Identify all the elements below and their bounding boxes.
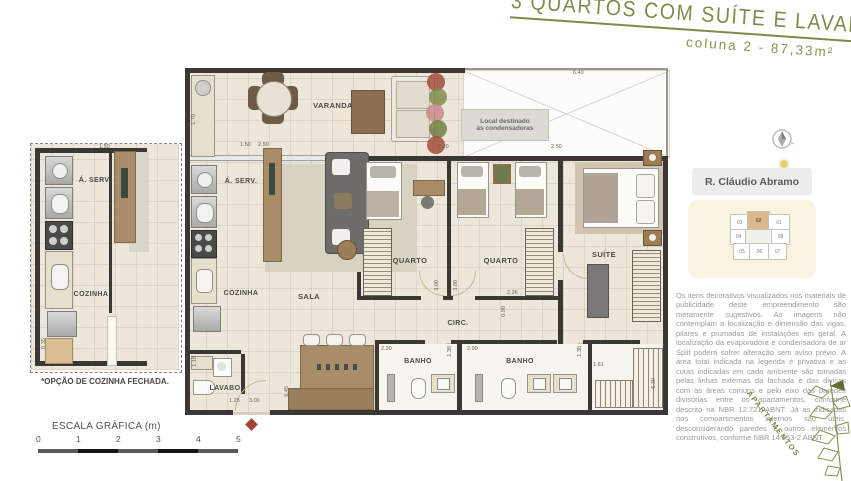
suite-bed (583, 168, 659, 228)
scale-segment (158, 449, 198, 453)
banho1-shower-column (387, 374, 395, 402)
small-washing-machine (45, 156, 73, 185)
small-fridge (47, 311, 77, 337)
dim-170: 1.70 (191, 114, 197, 125)
kitchen-sink (196, 269, 213, 293)
wall-quarto1-bottom (357, 296, 421, 300)
wall-bedrooms-top (355, 156, 668, 161)
condenser-label-line2: às condensadoras (476, 125, 533, 132)
suite-wardrobe (632, 250, 661, 322)
leaf-branch-icon (798, 378, 851, 481)
wall-right-thin (666, 68, 668, 156)
suite-bench (587, 264, 609, 318)
quarto1-bed (366, 162, 402, 220)
wall-left (185, 68, 190, 415)
dim-138a: 1.38 (447, 346, 453, 357)
small-door-opening (107, 316, 117, 366)
burner (205, 245, 212, 252)
washing-machine (191, 165, 217, 194)
dim-645: 6.45 (284, 386, 290, 397)
sofa-pillow (334, 193, 352, 209)
laundry-tank (191, 196, 217, 228)
main-floor-plan: Local destinado às condensadoras (185, 68, 668, 415)
kitchen-counter (191, 258, 217, 304)
condenser-label-box: Local destinado às condensadoras (461, 109, 549, 141)
small-cabinet (45, 338, 73, 364)
header: 3 QUARTOS COM SUÍTE E LAVABO coluna 2 - … (509, 0, 851, 61)
street-name: R. Cláudio Abramo (705, 176, 799, 188)
wall-bottom-right (270, 410, 668, 415)
room-label-banho2: BANHO (495, 358, 545, 365)
dim-250a: 2.50 (258, 142, 269, 148)
condenser-label-line1: Local destinado (480, 118, 529, 125)
quarto1-chair (421, 196, 434, 209)
scale-label: ESCALA GRÁFICA (m) (52, 421, 161, 432)
banho2-toilet (501, 378, 516, 399)
key-plan-building: 03 02 01 04 08 05 06 07 (730, 214, 788, 258)
bar-stool (349, 334, 366, 346)
bar-stool (326, 334, 343, 346)
bar-stool (303, 334, 320, 346)
blanket (367, 191, 399, 217)
scale-tick-0: 0 (36, 434, 41, 444)
varanda-counter-sink (195, 80, 211, 96)
room-label-suite: SUÍTE (581, 250, 627, 259)
dim-150: 1.50 (240, 142, 251, 148)
tv-screen (269, 163, 275, 195)
burner (49, 237, 57, 245)
small-wall-left (35, 148, 40, 366)
room-label-cozinha: COZINHA (219, 290, 263, 297)
stove (191, 230, 217, 258)
dim-161: 1.61 (593, 362, 604, 368)
dim-125: 1.25 (229, 398, 240, 404)
wall-quarto2-bottom (475, 296, 558, 300)
dim-300c: 3.00 (249, 398, 260, 404)
sofa-pillow (332, 159, 350, 175)
basin (437, 378, 450, 390)
dim-226: 2.26 (507, 290, 518, 296)
scale-tick-3: 3 (156, 434, 161, 444)
tank-basin (51, 194, 69, 214)
varanda-table-set (248, 72, 298, 124)
plant (429, 88, 447, 106)
washer-door (52, 163, 68, 179)
room-label-quarto1: QUARTO (380, 256, 440, 265)
dim-290: 2.90 (467, 346, 478, 352)
wall-right (663, 156, 668, 415)
blanket (584, 173, 618, 223)
banho2-sink-counter-1 (527, 374, 551, 393)
pillow (461, 166, 483, 177)
scale-segment (118, 449, 158, 453)
bar-counter-step (288, 388, 374, 410)
quarto2-picture (493, 164, 511, 184)
condenser-area: Local destinado às condensadoras (463, 70, 670, 158)
small-floor-plan: Á. SERV. COZINHA 1.50 0.35 (30, 143, 182, 373)
wall-top (185, 68, 465, 73)
lamp (649, 154, 656, 161)
compass-dot (780, 160, 788, 168)
quarto2-bed-1 (457, 162, 489, 218)
dim-138b: 1.38 (577, 346, 583, 357)
closet-hangers-side (633, 348, 663, 408)
basin (533, 378, 546, 390)
room-label-sala: SALA (287, 292, 331, 301)
room-label-circ: CIRC. (440, 320, 476, 327)
wall-quartos-bottom-mid (443, 296, 453, 300)
pillow (636, 174, 655, 198)
quarto1-desk (413, 180, 445, 196)
burner (205, 234, 212, 241)
wall-lavabo-top (185, 350, 241, 354)
small-room-label-cozinha: COZINHA (69, 291, 113, 298)
burner (60, 237, 68, 245)
room-label-lavabo: LAVABO (201, 385, 249, 392)
burner (195, 245, 202, 252)
compass-icon (768, 126, 798, 156)
small-tv-panel (114, 151, 136, 243)
dim-220b: 2.20 (381, 346, 392, 352)
room-label-varanda: VARANDA (303, 101, 363, 110)
round-table (256, 81, 292, 117)
lavabo-sink (213, 358, 232, 377)
key-unit-07: 07 (768, 243, 787, 260)
entry-threshold (233, 412, 270, 414)
small-laundry-tank (45, 187, 73, 219)
washer-door (197, 172, 213, 188)
page: 3 QUARTOS COM SUÍTE E LAVABO coluna 2 - … (0, 0, 851, 481)
entry-marker (245, 418, 258, 431)
closed-kitchen-caption: *OPÇÃO DE COZINHA FECHADA. (26, 377, 184, 386)
scale-segment (78, 449, 118, 453)
varanda-bench (351, 90, 385, 134)
basin (559, 378, 572, 390)
key-unit-02: 02 (747, 211, 770, 231)
blanket (516, 189, 544, 215)
nightstand (643, 150, 662, 166)
dim-090: 0.90 (501, 306, 507, 317)
burner (49, 225, 57, 233)
dim-630: 6.30 (651, 378, 657, 389)
dim-300b: 3.00 (453, 280, 459, 291)
key-unit-06: 06 (749, 243, 770, 260)
banho1-sink-counter (431, 374, 455, 393)
street-label-bar: R. Cláudio Abramo (692, 168, 812, 195)
banho1-toilet (411, 378, 426, 399)
quarto2-bed-2 (515, 162, 547, 218)
closet-hangers-bottom (595, 380, 633, 408)
scale-tick-1: 1 (76, 434, 81, 444)
banho2-shower-column (475, 374, 483, 402)
small-dim-035: 0.35 (41, 338, 47, 349)
tank-basin (196, 203, 214, 223)
banho2-sink-counter-2 (553, 374, 577, 393)
scale-tick-5: 5 (236, 434, 241, 444)
small-stove (45, 221, 73, 250)
nightstand (643, 230, 662, 246)
tv-panel (263, 148, 282, 262)
lamp (649, 234, 656, 241)
scale-segment (38, 449, 78, 453)
pillow (519, 166, 541, 177)
dim-220a: 2.20 (438, 144, 449, 150)
plants (425, 73, 449, 155)
pillow (636, 200, 655, 224)
burner (195, 234, 202, 241)
burner (60, 225, 68, 233)
room-label-aserv: Á. SERV. (219, 178, 263, 185)
room-label-quarto2: QUARTO (471, 256, 531, 265)
dim-300a: 3.00 (434, 280, 440, 291)
scale-segment (198, 449, 238, 453)
dim-118: 1.18 (192, 356, 198, 367)
wall-top-thin (465, 68, 668, 70)
scale-tick-2: 2 (116, 434, 121, 444)
kitchen-sink (51, 264, 69, 290)
basin (217, 362, 226, 371)
key-plan-card: 03 02 01 04 08 05 06 07 (688, 200, 816, 278)
blanket (458, 189, 486, 215)
side-table (337, 240, 357, 260)
dim-640: 6.40 (573, 70, 584, 76)
room-label-banho1: BANHO (393, 358, 443, 365)
wall-bottom-left (185, 410, 233, 415)
bar-counter (300, 345, 374, 393)
wall-quarto2-suite (558, 156, 563, 252)
dim-250b: 2.50 (551, 144, 562, 150)
scale-tick-4: 4 (196, 434, 201, 444)
tv-screen (121, 168, 128, 198)
small-room-label-aserv: Á. SERV. (73, 177, 117, 184)
fridge (193, 306, 221, 332)
cooktop-dots (317, 364, 357, 370)
small-kitchen-counter (45, 251, 73, 309)
pillow (370, 166, 396, 178)
small-dim-150: 1.50 (99, 144, 110, 150)
